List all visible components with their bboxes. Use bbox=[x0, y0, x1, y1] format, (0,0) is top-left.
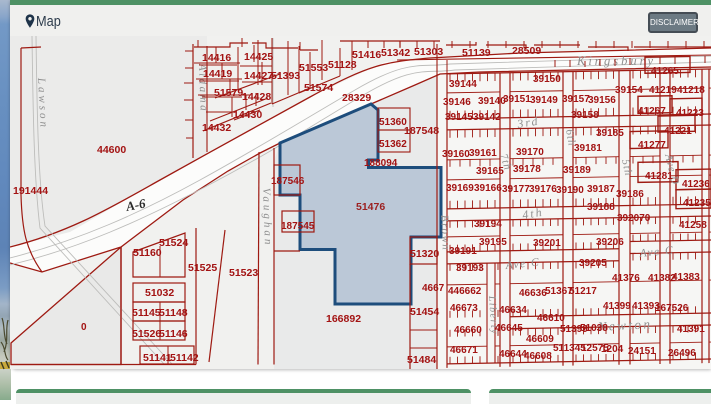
svg-text:41391: 41391 bbox=[677, 324, 705, 335]
svg-text:Kingsbury: Kingsbury bbox=[576, 54, 656, 68]
svg-text:46609: 46609 bbox=[526, 334, 554, 345]
svg-text:39189: 39189 bbox=[563, 165, 591, 176]
svg-text:14428: 14428 bbox=[242, 91, 271, 103]
svg-text:51038: 51038 bbox=[580, 323, 608, 334]
svg-text:51342: 51342 bbox=[381, 47, 410, 59]
svg-text:39170: 39170 bbox=[516, 147, 544, 158]
svg-text:51141: 51141 bbox=[143, 352, 172, 364]
svg-text:Vaughan: Vaughan bbox=[260, 188, 274, 248]
svg-text:41221: 41221 bbox=[664, 126, 692, 137]
svg-text:39146: 39146 bbox=[443, 97, 471, 108]
svg-text:41265: 41265 bbox=[651, 66, 679, 77]
svg-text:39160: 39160 bbox=[442, 149, 470, 160]
svg-text:24151: 24151 bbox=[628, 346, 656, 357]
svg-text:39145: 39145 bbox=[445, 112, 473, 123]
svg-text:39195: 39195 bbox=[479, 237, 507, 248]
svg-text:187545: 187545 bbox=[281, 221, 315, 232]
svg-text:39169: 39169 bbox=[446, 183, 474, 194]
svg-text:46671: 46671 bbox=[450, 345, 478, 356]
svg-text:51553: 51553 bbox=[299, 62, 328, 74]
svg-text:39190: 39190 bbox=[556, 185, 584, 196]
svg-text:51476: 51476 bbox=[356, 201, 385, 213]
svg-text:51526: 51526 bbox=[132, 328, 161, 340]
svg-text:14416: 14416 bbox=[202, 52, 231, 64]
svg-text:39181: 39181 bbox=[574, 143, 602, 154]
svg-text:41267: 41267 bbox=[638, 106, 666, 117]
svg-text:51579: 51579 bbox=[214, 87, 243, 99]
svg-text:39201: 39201 bbox=[533, 238, 561, 249]
svg-text:51393: 51393 bbox=[271, 70, 300, 82]
svg-text:39156: 39156 bbox=[588, 95, 616, 106]
svg-text:51303: 51303 bbox=[414, 46, 443, 58]
svg-text:14419: 14419 bbox=[203, 68, 232, 80]
svg-text:41235: 41235 bbox=[683, 198, 711, 209]
svg-text:28329: 28329 bbox=[342, 92, 371, 104]
svg-text:46610: 46610 bbox=[537, 313, 565, 324]
svg-text:46608: 46608 bbox=[524, 351, 552, 362]
svg-text:39154: 39154 bbox=[615, 85, 643, 96]
svg-text:39185: 39185 bbox=[596, 128, 624, 139]
svg-text:51139: 51139 bbox=[462, 47, 491, 59]
svg-text:187546: 187546 bbox=[271, 176, 305, 187]
svg-text:191444: 191444 bbox=[13, 185, 48, 197]
svg-text:39142: 39142 bbox=[473, 112, 501, 123]
svg-text:39140: 39140 bbox=[478, 96, 506, 107]
svg-text:51416: 51416 bbox=[352, 49, 381, 61]
svg-text:1204: 1204 bbox=[601, 344, 624, 355]
svg-text:39191: 39191 bbox=[449, 246, 477, 257]
svg-text:41223: 41223 bbox=[676, 108, 704, 119]
svg-text:39188: 39188 bbox=[587, 202, 615, 213]
svg-text:41376: 41376 bbox=[612, 273, 640, 284]
svg-text:41258: 41258 bbox=[679, 220, 707, 231]
svg-text:39187: 39187 bbox=[587, 184, 615, 195]
svg-text:51160: 51160 bbox=[133, 247, 162, 259]
svg-text:26496: 26496 bbox=[668, 348, 696, 359]
svg-text:446662: 446662 bbox=[448, 286, 482, 297]
svg-text:39144: 39144 bbox=[449, 79, 477, 90]
svg-text:187548: 187548 bbox=[404, 125, 439, 137]
svg-text:14427: 14427 bbox=[244, 70, 273, 82]
svg-text:39161: 39161 bbox=[469, 148, 497, 159]
svg-text:51145: 51145 bbox=[132, 307, 161, 319]
svg-text:39150: 39150 bbox=[533, 74, 561, 85]
svg-text:14425: 14425 bbox=[244, 51, 273, 63]
svg-text:46644: 46644 bbox=[499, 349, 527, 360]
svg-text:51148: 51148 bbox=[159, 307, 188, 319]
svg-text:51484: 51484 bbox=[407, 354, 436, 366]
svg-text:51320: 51320 bbox=[410, 248, 439, 260]
svg-text:46636: 46636 bbox=[519, 288, 547, 299]
svg-text:166892: 166892 bbox=[326, 313, 361, 325]
svg-text:14432: 14432 bbox=[202, 122, 231, 134]
svg-text:46645: 46645 bbox=[495, 323, 523, 334]
svg-text:167526: 167526 bbox=[655, 303, 689, 314]
svg-text:44600: 44600 bbox=[97, 144, 126, 156]
svg-text:46634: 46634 bbox=[499, 305, 527, 316]
svg-text:46660: 46660 bbox=[454, 325, 482, 336]
svg-text:39149: 39149 bbox=[530, 95, 558, 106]
svg-text:39176: 39176 bbox=[529, 184, 557, 195]
svg-text:39193: 39193 bbox=[456, 263, 484, 274]
svg-text:51524: 51524 bbox=[159, 237, 188, 249]
svg-text:51574: 51574 bbox=[304, 82, 333, 94]
svg-text:51523: 51523 bbox=[229, 267, 258, 279]
svg-text:28509: 28509 bbox=[512, 45, 541, 57]
svg-text:41277: 41277 bbox=[638, 140, 666, 151]
svg-text:39165: 39165 bbox=[476, 166, 504, 177]
svg-text:51360: 51360 bbox=[379, 117, 407, 128]
svg-text:51454: 51454 bbox=[410, 306, 439, 318]
svg-text:41383: 41383 bbox=[672, 272, 700, 283]
svg-text:39177: 39177 bbox=[502, 184, 530, 195]
svg-text:41281: 41281 bbox=[645, 171, 673, 182]
svg-text:51362: 51362 bbox=[379, 139, 407, 150]
svg-text:39178: 39178 bbox=[513, 164, 541, 175]
svg-text:14430: 14430 bbox=[233, 109, 262, 121]
svg-text:39205: 39205 bbox=[579, 258, 607, 269]
svg-text:51142: 51142 bbox=[170, 352, 199, 364]
svg-text:39157: 39157 bbox=[562, 94, 590, 105]
svg-text:188094: 188094 bbox=[364, 158, 398, 169]
svg-text:51146: 51146 bbox=[159, 328, 188, 340]
svg-text:51217: 51217 bbox=[569, 286, 597, 297]
svg-text:41236: 41236 bbox=[682, 179, 710, 190]
svg-text:51525: 51525 bbox=[188, 262, 217, 274]
svg-text:41219: 41219 bbox=[649, 85, 677, 96]
svg-text:39186: 39186 bbox=[616, 189, 644, 200]
svg-text:392070: 392070 bbox=[617, 213, 651, 224]
svg-text:51032: 51032 bbox=[145, 287, 174, 299]
svg-text:39158: 39158 bbox=[571, 110, 599, 121]
svg-text:4667: 4667 bbox=[422, 283, 445, 294]
svg-text:39166: 39166 bbox=[474, 183, 502, 194]
svg-text:41218: 41218 bbox=[677, 85, 705, 96]
svg-text:0: 0 bbox=[81, 322, 87, 333]
svg-text:41399: 41399 bbox=[603, 301, 631, 312]
svg-text:39151: 39151 bbox=[503, 94, 531, 105]
svg-text:39206: 39206 bbox=[596, 237, 624, 248]
svg-text:39194: 39194 bbox=[474, 219, 502, 230]
svg-text:46673: 46673 bbox=[450, 303, 478, 314]
